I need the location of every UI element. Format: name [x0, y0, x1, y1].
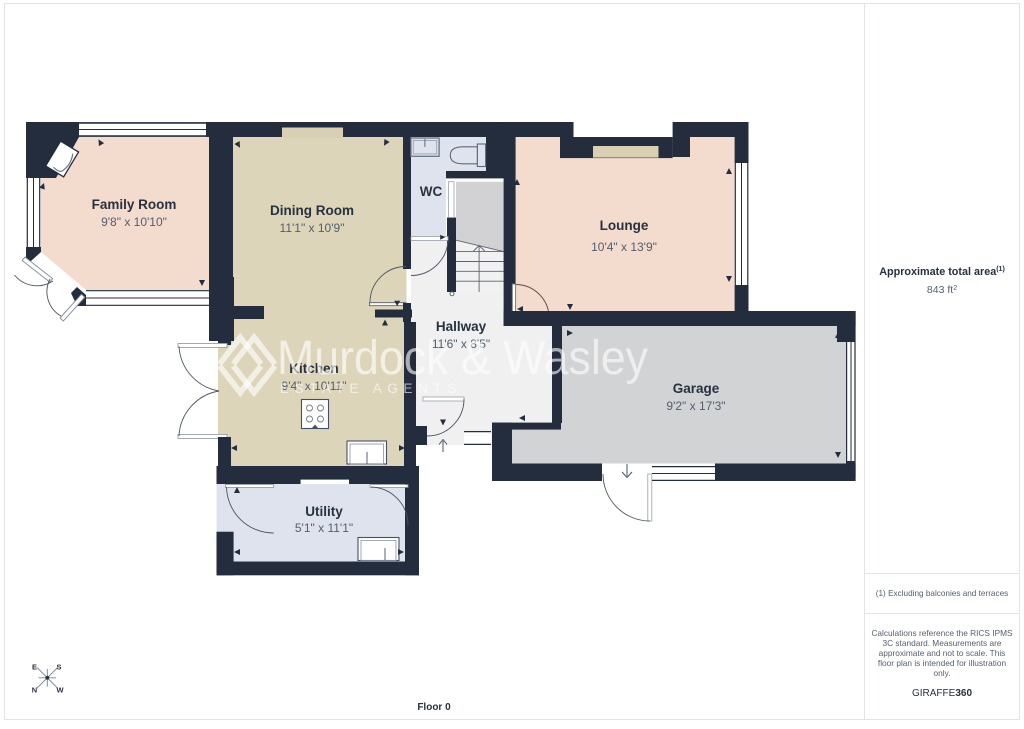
- svg-text:11'1" x 10'9": 11'1" x 10'9": [280, 221, 345, 235]
- svg-text:E: E: [32, 662, 37, 671]
- svg-text:N: N: [32, 686, 37, 695]
- svg-text:9'8" x 10'10": 9'8" x 10'10": [101, 215, 167, 229]
- svg-text:3C standard. Measurements are: 3C standard. Measurements are: [883, 638, 1002, 648]
- svg-text:GIRAFFE360: GIRAFFE360: [912, 688, 972, 699]
- svg-text:Lounge: Lounge: [600, 218, 649, 233]
- svg-text:ESTATE AGENTS: ESTATE AGENTS: [280, 381, 462, 396]
- svg-text:10'4" x 13'9": 10'4" x 13'9": [591, 240, 657, 254]
- svg-text:9'2" x 17'3": 9'2" x 17'3": [666, 399, 725, 413]
- svg-text:Dining Room: Dining Room: [270, 203, 354, 218]
- svg-text:(1) Excluding balconies and te: (1) Excluding balconies and terraces: [876, 589, 1008, 598]
- svg-text:floor plan is intended for ill: floor plan is intended for illustration: [878, 658, 1007, 668]
- svg-text:Calculations reference the RIC: Calculations reference the RICS IPMS: [871, 628, 1013, 638]
- svg-text:Family Room: Family Room: [92, 197, 177, 212]
- svg-text:WC: WC: [420, 184, 443, 199]
- svg-text:Murdock & Wasley: Murdock & Wasley: [277, 332, 648, 385]
- svg-text:Utility: Utility: [305, 504, 343, 519]
- svg-text:W: W: [56, 686, 64, 695]
- svg-text:Garage: Garage: [673, 381, 720, 396]
- svg-text:only.: only.: [934, 668, 951, 678]
- svg-text:Floor 0: Floor 0: [417, 702, 451, 713]
- svg-text:S: S: [56, 662, 61, 671]
- svg-text:approximate and not to scale.: approximate and not to scale. This: [879, 648, 1006, 658]
- svg-text:843 ft2: 843 ft2: [927, 284, 957, 296]
- svg-text:Approximate total area(1): Approximate total area(1): [879, 266, 1005, 278]
- svg-text:5'1" x 11'1": 5'1" x 11'1": [295, 521, 353, 535]
